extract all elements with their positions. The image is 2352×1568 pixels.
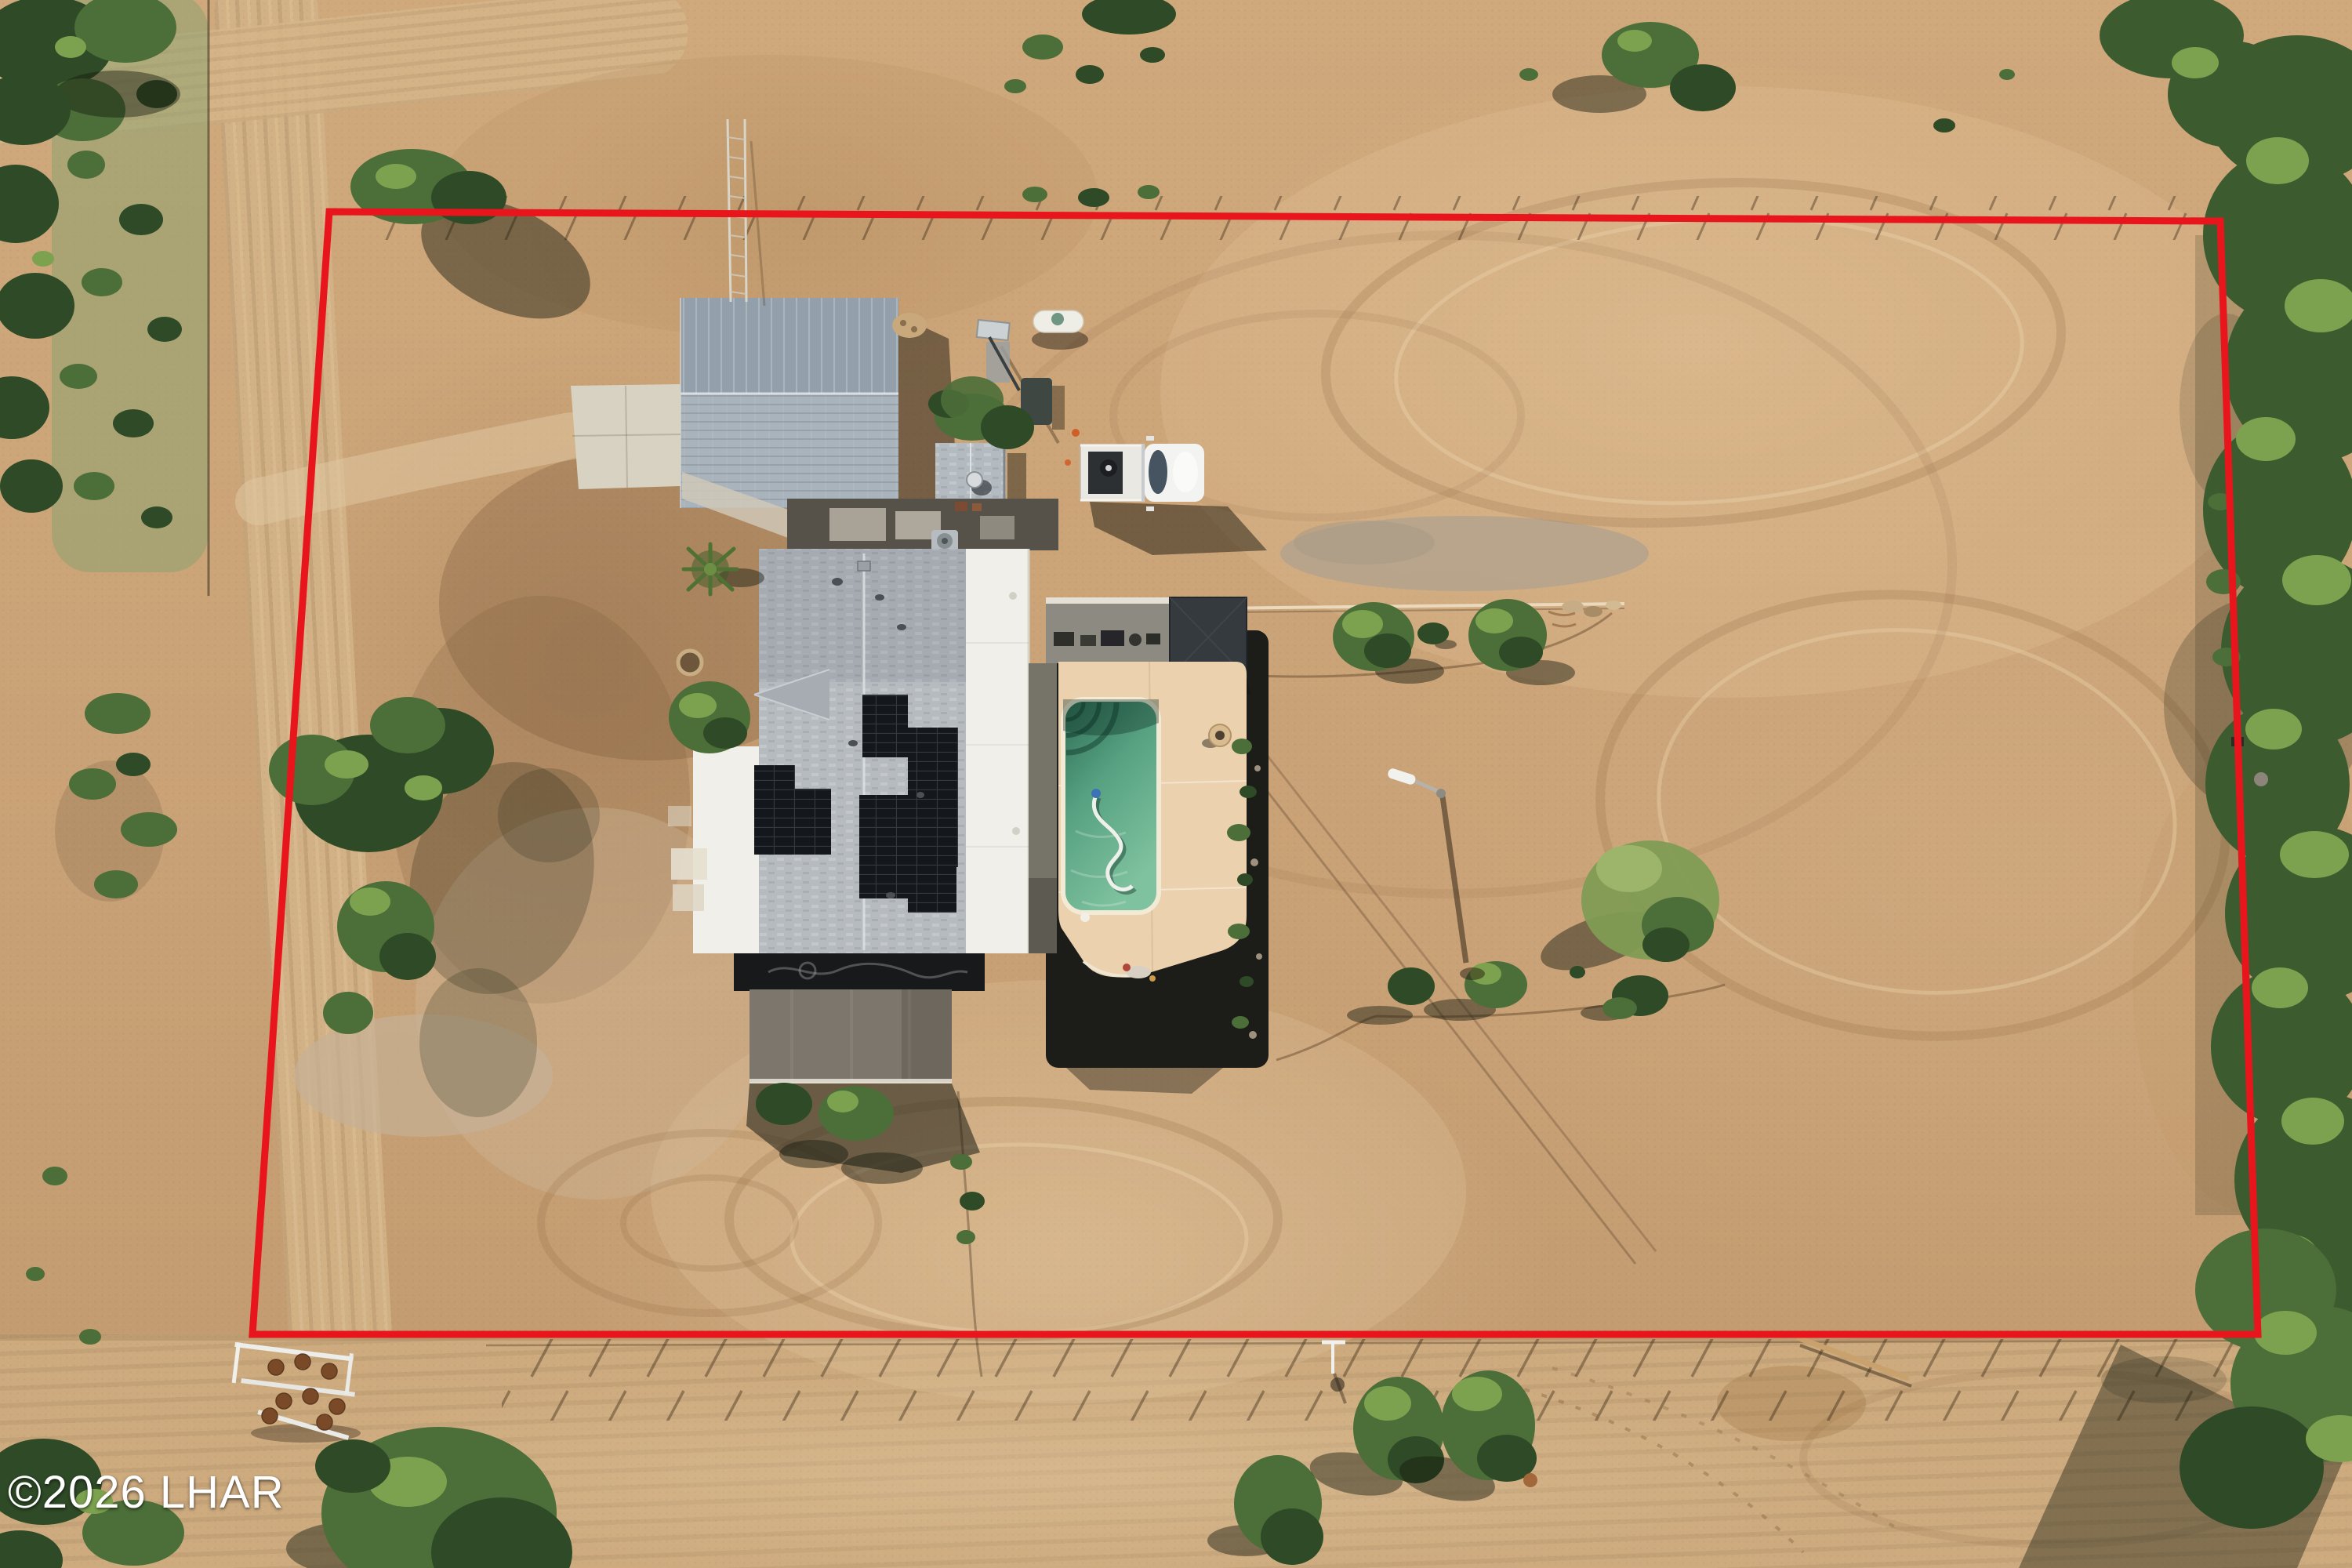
pool-area [1029,597,1269,1094]
aerial-photo: ©2026 LHAR [0,0,2352,1568]
photo-watermark: ©2026 LHAR [8,1466,285,1519]
truck-windshield [1149,450,1167,494]
horse-obstacle-cluster [232,1342,361,1443]
light-pole [1387,768,1485,980]
west-mid-shrubs [26,693,177,1345]
lamp-head [1387,768,1417,786]
propane-dome [1051,313,1064,325]
orange-marker [1072,429,1080,437]
west-bush [669,681,750,753]
rock-pile [892,313,927,338]
tumbleweed [1523,1473,1537,1487]
fire-pit [678,651,702,674]
propane-tank [1032,310,1088,350]
spare-tire [1105,465,1112,471]
east-flat-roof [966,549,1029,953]
water-heater [967,472,982,488]
swimming-pool [1063,699,1159,913]
pool-cleaner [1091,789,1101,798]
scene-overlay [0,0,2352,1568]
south-shadow-court [734,953,985,991]
